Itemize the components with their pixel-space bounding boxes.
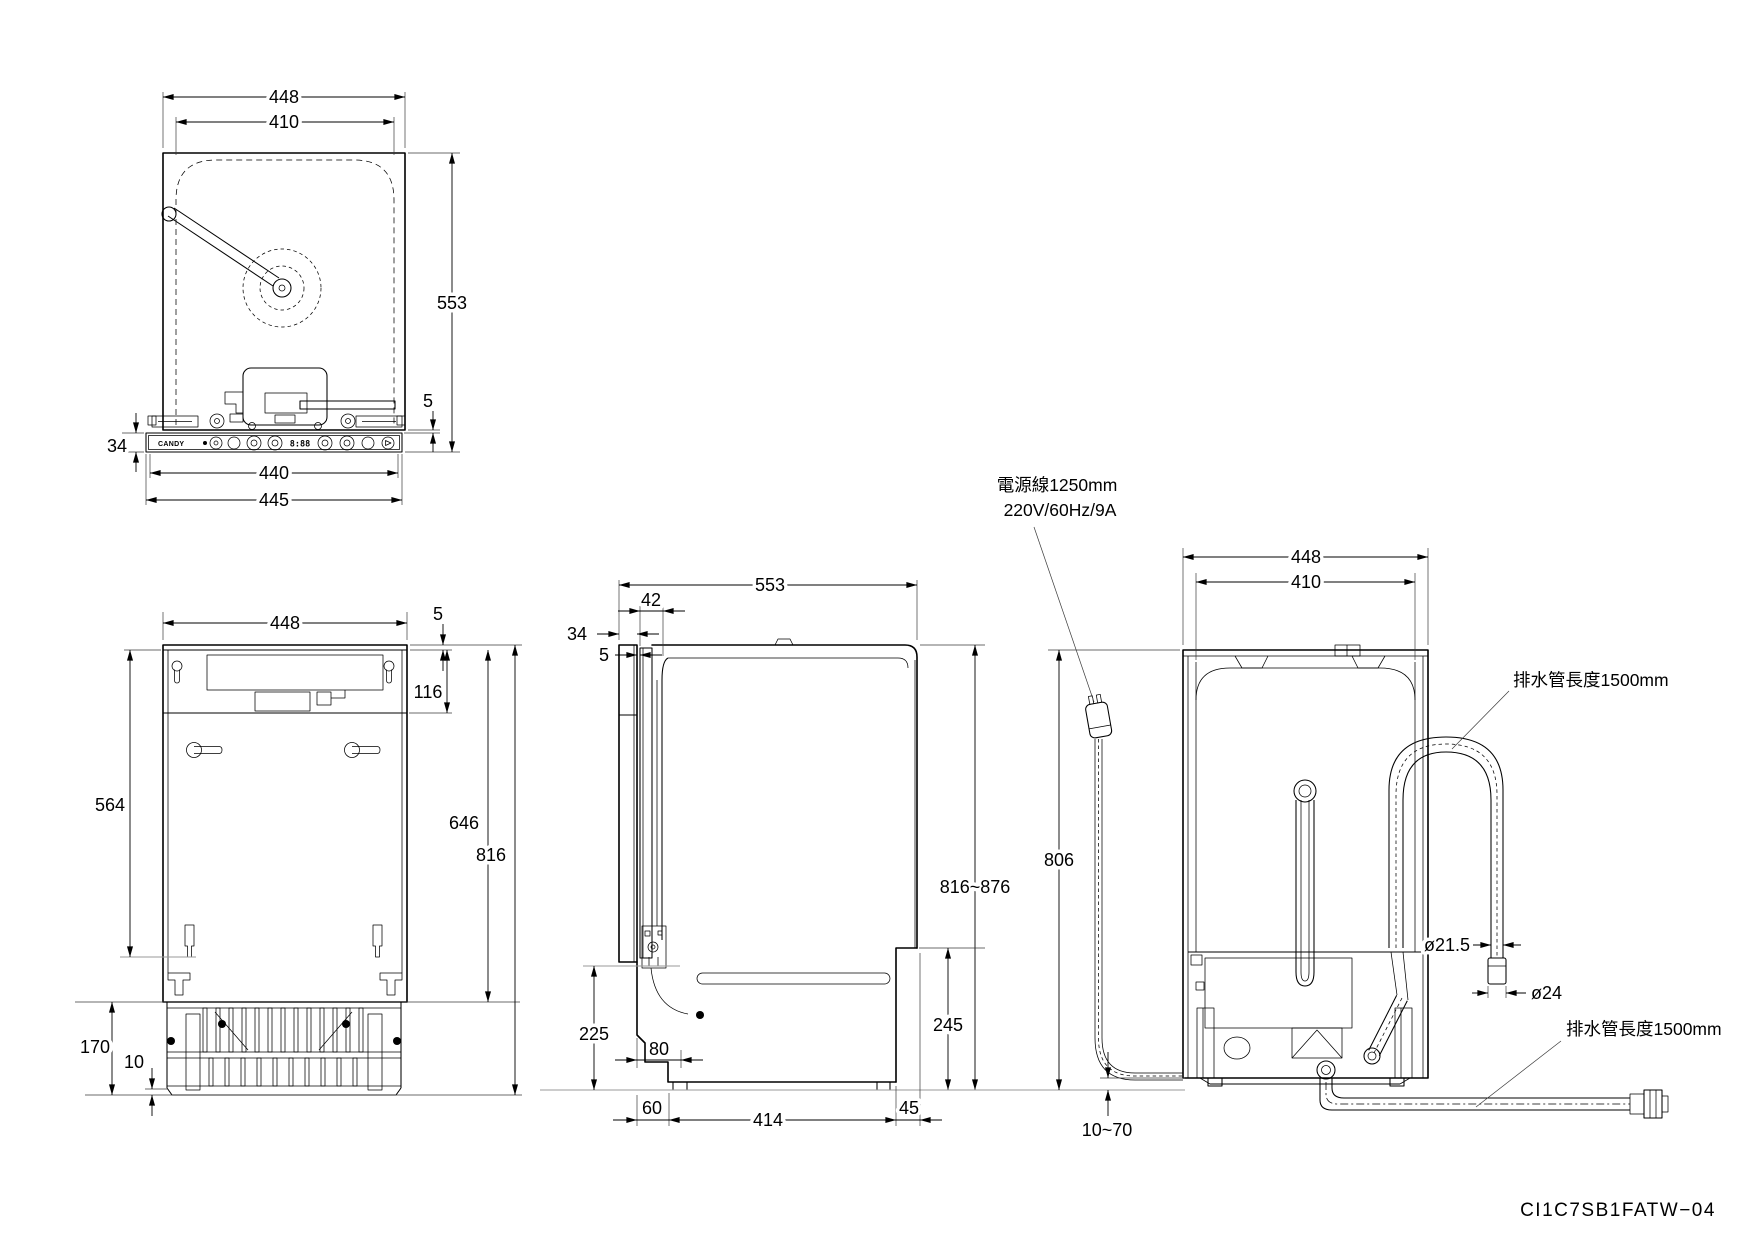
spray-arm-icon (162, 207, 321, 327)
label-drain-hose-top: 排水管長度1500mm (1513, 670, 1669, 690)
bottom-slot-left (185, 925, 194, 957)
bottom-slot-right (373, 925, 382, 957)
drawing-part-number: CI1C7SB1FATW−04 (1520, 1200, 1716, 1221)
dim-front-5: 5 (433, 604, 443, 624)
dim-side-414: 414 (753, 1110, 783, 1130)
base-grille (75, 1002, 520, 1095)
pump-opening (1224, 1037, 1250, 1059)
service-slot (697, 973, 890, 984)
mounting-keyhole-left (172, 661, 182, 683)
top-view: CANDY 8:88 448 410 553 (107, 87, 467, 510)
dim-side-60: 60 (642, 1098, 662, 1118)
control-panel: CANDY 8:88 (146, 433, 402, 452)
door-slab (640, 648, 652, 958)
label-power-spec: 220V/60Hz/9A (1004, 500, 1117, 520)
dim-top-445: 445 (259, 490, 289, 510)
drain-hose (1364, 737, 1506, 1064)
power-cord (1083, 694, 1183, 1080)
power-plug-icon (1083, 694, 1112, 739)
dim-back-448: 448 (1291, 547, 1321, 567)
door-latch-mechanism (148, 368, 405, 430)
panel-display: 8:88 (290, 440, 310, 450)
dim-front-816: 816 (476, 845, 506, 865)
dim-side-816-876: 816~876 (940, 877, 1011, 897)
dim-side-45: 45 (899, 1098, 919, 1118)
dim-top-5: 5 (423, 391, 433, 411)
technical-drawing-page: CANDY 8:88 448 410 553 (0, 0, 1754, 1240)
dim-side-5: 5 (599, 645, 609, 665)
brand-logo: CANDY (158, 441, 184, 448)
dim-front-564: 564 (95, 795, 125, 815)
dim-top-448: 448 (269, 87, 299, 107)
dim-back-806: 806 (1044, 850, 1074, 870)
side-fixing-slot-left (187, 743, 223, 758)
drain-channel-tube (1294, 780, 1316, 986)
dim-side-553: 553 (755, 575, 785, 595)
vent-grid (1205, 958, 1352, 1028)
dishwasher-installation-drawing: CANDY 8:88 448 410 553 (0, 0, 1754, 1240)
rear-foot (877, 1082, 890, 1090)
dim-front-10: 10 (124, 1052, 144, 1072)
door-seal-dashed-outline (176, 160, 394, 425)
t-slot-right (380, 973, 402, 995)
hose-nut (1644, 1090, 1662, 1118)
dim-hose-end-diameter: ø24 (1531, 983, 1562, 1003)
dim-side-245: 245 (933, 1015, 963, 1035)
t-slot-left (168, 973, 190, 995)
dim-front-646: 646 (449, 813, 479, 833)
dim-hose-diameter: ø21.5 (1424, 935, 1470, 955)
front-view: 448 5 116 564 646 816 170 10 (75, 604, 522, 1116)
dim-top-410: 410 (269, 112, 299, 132)
dim-side-225: 225 (579, 1024, 609, 1044)
dim-side-34: 34 (567, 624, 587, 644)
door-hinge (642, 926, 704, 1019)
dim-side-42: 42 (641, 590, 661, 610)
label-drain-hose-bottom: 排水管長度1500mm (1566, 1019, 1722, 1039)
dim-front-170: 170 (80, 1037, 110, 1057)
inlet-hose (1317, 1061, 1668, 1118)
dim-top-34: 34 (107, 436, 127, 456)
dim-back-10-70: 10~70 (1082, 1120, 1133, 1140)
dim-front-448: 448 (270, 613, 300, 633)
front-foot (673, 1082, 687, 1090)
dim-side-80: 80 (649, 1039, 669, 1059)
dim-front-116: 116 (414, 682, 443, 702)
label-power-cord: 電源線1250mm (997, 475, 1118, 495)
side-fixing-slot-right (345, 743, 381, 758)
side-view: 553 42 34 5 816~876 245 225 (540, 575, 1010, 1130)
hinge-pin-bump (775, 639, 793, 645)
back-view: 448 410 806 10~70 ø21.5 ø24 排水管長度1500mm (930, 475, 1722, 1140)
toothed-strip (300, 401, 395, 409)
front-view-dimensions: 448 5 116 564 646 816 170 10 (80, 604, 522, 1116)
dim-back-410: 410 (1291, 572, 1321, 592)
mounting-keyhole-right (384, 661, 394, 683)
dim-top-553: 553 (437, 293, 467, 313)
dim-top-440: 440 (259, 463, 289, 483)
